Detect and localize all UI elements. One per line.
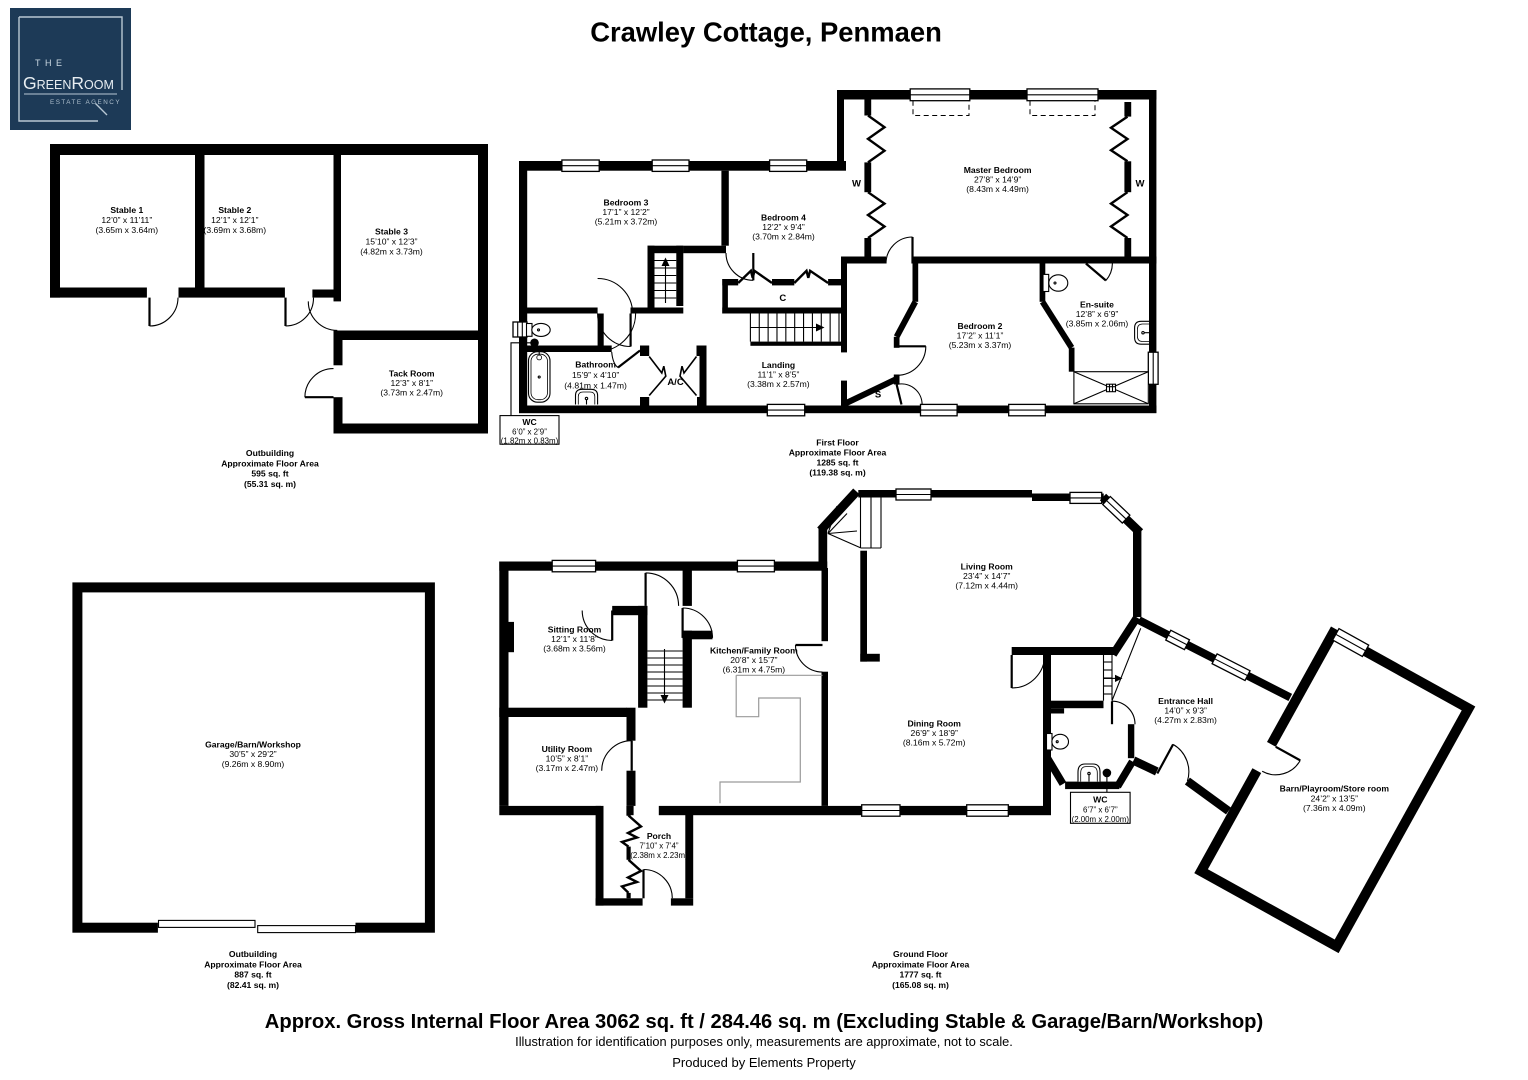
svg-text:(3.38m x 2.57m): (3.38m x 2.57m) bbox=[747, 379, 810, 389]
svg-text:WC: WC bbox=[522, 417, 536, 427]
svg-text:Living Room: Living Room bbox=[961, 562, 1013, 572]
svg-text:Bathroom: Bathroom bbox=[575, 360, 616, 370]
svg-text:(5.23m x 3.37m): (5.23m x 3.37m) bbox=[949, 340, 1012, 350]
svg-text:(82.41 sq. m): (82.41 sq. m) bbox=[227, 980, 279, 990]
svg-text:(3.70m x 2.84m): (3.70m x 2.84m) bbox=[752, 232, 815, 242]
svg-text:Approximate Floor Area: Approximate Floor Area bbox=[872, 959, 970, 969]
svg-text:Porch: Porch bbox=[647, 831, 671, 841]
svg-text:Approximate Floor Area: Approximate Floor Area bbox=[221, 458, 319, 468]
svg-text:(119.38 sq. m): (119.38 sq. m) bbox=[809, 468, 866, 478]
svg-text:12’1” x 11’8”: 12’1” x 11’8” bbox=[551, 634, 598, 644]
svg-text:12’0” x 11’11”: 12’0” x 11’11” bbox=[101, 215, 152, 225]
svg-text:26’9” x 18’9”: 26’9” x 18’9” bbox=[911, 728, 958, 738]
svg-text:17’1” x 12’2”: 17’1” x 12’2” bbox=[602, 207, 649, 217]
svg-text:Stable 3: Stable 3 bbox=[375, 227, 408, 237]
svg-text:Kitchen/Family Room: Kitchen/Family Room bbox=[710, 646, 798, 656]
svg-text:(4.82m x 3.73m): (4.82m x 3.73m) bbox=[360, 246, 423, 256]
svg-text:(3.65m x 3.64m): (3.65m x 3.64m) bbox=[96, 225, 159, 235]
svg-text:Approximate Floor Area: Approximate Floor Area bbox=[204, 959, 302, 969]
svg-text:Dining Room: Dining Room bbox=[907, 718, 961, 728]
svg-text:(8.43m x 4.49m): (8.43m x 4.49m) bbox=[966, 184, 1029, 194]
svg-text:Barn/Playroom/Store room: Barn/Playroom/Store room bbox=[1280, 784, 1390, 794]
svg-text:Outbuilding: Outbuilding bbox=[229, 949, 277, 959]
svg-text:THE: THE bbox=[35, 58, 67, 68]
svg-text:6’7” x 6’7”: 6’7” x 6’7” bbox=[1083, 805, 1118, 814]
svg-text:12’1” x 12’1”: 12’1” x 12’1” bbox=[211, 215, 258, 225]
svg-text:(9.26m x 8.90m): (9.26m x 8.90m) bbox=[222, 759, 285, 769]
svg-text:Entrance Hall: Entrance Hall bbox=[1158, 696, 1213, 706]
svg-text:14’0” x 9’3”: 14’0” x 9’3” bbox=[1164, 706, 1207, 716]
svg-text:A/C: A/C bbox=[667, 377, 684, 388]
svg-text:Approx. Gross Internal Floor A: Approx. Gross Internal Floor Area 3062 s… bbox=[265, 1011, 1263, 1033]
svg-text:595 sq. ft: 595 sq. ft bbox=[251, 469, 288, 479]
svg-text:6’0” x 2’9”: 6’0” x 2’9” bbox=[512, 427, 547, 436]
svg-text:W: W bbox=[852, 179, 861, 190]
svg-text:30’5” x 29’2”: 30’5” x 29’2” bbox=[229, 749, 276, 759]
svg-text:17’2” x 11’1”: 17’2” x 11’1” bbox=[957, 331, 1004, 341]
svg-text:Produced by Elements Property: Produced by Elements Property bbox=[672, 1055, 856, 1070]
svg-text:Stable 2: Stable 2 bbox=[218, 205, 251, 215]
svg-text:887 sq. ft: 887 sq. ft bbox=[234, 970, 271, 980]
svg-text:1777 sq. ft: 1777 sq. ft bbox=[899, 970, 941, 980]
svg-text:ESTATE AGENCY: ESTATE AGENCY bbox=[50, 99, 121, 106]
svg-text:First Floor: First Floor bbox=[816, 438, 859, 448]
svg-text:Bedroom 4: Bedroom 4 bbox=[761, 212, 806, 222]
svg-text:C: C bbox=[779, 293, 786, 304]
svg-text:(3.68m x 3.56m): (3.68m x 3.56m) bbox=[543, 644, 606, 654]
svg-text:(7.36m x 4.09m): (7.36m x 4.09m) bbox=[1303, 803, 1366, 813]
svg-text:En-suite: En-suite bbox=[1080, 299, 1114, 309]
svg-text:15’9” x 4’10”: 15’9” x 4’10” bbox=[572, 370, 619, 380]
svg-text:12’2” x 9’4”: 12’2” x 9’4” bbox=[762, 222, 805, 232]
svg-text:24’2” x 13’5”: 24’2” x 13’5” bbox=[1311, 793, 1358, 803]
svg-text:Approximate Floor Area: Approximate Floor Area bbox=[789, 448, 887, 458]
svg-text:Ground Floor: Ground Floor bbox=[893, 949, 949, 959]
svg-text:15’10” x 12’3”: 15’10” x 12’3” bbox=[365, 236, 417, 246]
svg-text:(3.17m x 2.47m): (3.17m x 2.47m) bbox=[536, 763, 599, 773]
svg-text:Bedroom 2: Bedroom 2 bbox=[958, 321, 1003, 331]
svg-text:S: S bbox=[875, 390, 881, 401]
svg-text:Landing: Landing bbox=[762, 360, 795, 370]
svg-text:(4.27m x 2.83m): (4.27m x 2.83m) bbox=[1154, 715, 1217, 725]
svg-text:(165.08 sq. m): (165.08 sq. m) bbox=[892, 980, 949, 990]
svg-text:12’8” x 6’9”: 12’8” x 6’9” bbox=[1076, 309, 1119, 319]
svg-text:7’10” x 7’4”: 7’10” x 7’4” bbox=[639, 841, 678, 850]
svg-text:23’4” x 14’7”: 23’4” x 14’7” bbox=[963, 571, 1010, 581]
svg-text:Sitting Room: Sitting Room bbox=[548, 625, 602, 635]
svg-text:WC: WC bbox=[1093, 794, 1107, 804]
svg-text:(2.00m x 2.00m): (2.00m x 2.00m) bbox=[1072, 815, 1130, 824]
svg-text:(6.31m x 4.75m): (6.31m x 4.75m) bbox=[723, 665, 786, 675]
svg-text:Garage/Barn/Workshop: Garage/Barn/Workshop bbox=[205, 740, 301, 750]
svg-text:(55.31 sq. m): (55.31 sq. m) bbox=[244, 479, 296, 489]
svg-text:20’8” x 15’7”: 20’8” x 15’7” bbox=[730, 655, 777, 665]
svg-text:(8.16m x 5.72m): (8.16m x 5.72m) bbox=[903, 738, 966, 748]
svg-text:Utility Room: Utility Room bbox=[542, 744, 593, 754]
svg-text:(2.38m x 2.23m): (2.38m x 2.23m) bbox=[630, 851, 688, 860]
svg-text:Crawley Cottage, Penmaen: Crawley Cottage, Penmaen bbox=[590, 17, 942, 48]
svg-text:Stable 1: Stable 1 bbox=[110, 205, 143, 215]
svg-text:Outbuilding: Outbuilding bbox=[246, 448, 294, 458]
svg-text:Illustration for identificatio: Illustration for identification purposes… bbox=[515, 1034, 1013, 1049]
svg-text:W: W bbox=[1136, 179, 1145, 190]
svg-text:10’5” x 8’1”: 10’5” x 8’1” bbox=[546, 754, 589, 764]
svg-text:(5.21m x 3.72m): (5.21m x 3.72m) bbox=[595, 217, 658, 227]
svg-text:(3.73m x 2.47m): (3.73m x 2.47m) bbox=[380, 387, 443, 397]
svg-text:(3.69m x 3.68m): (3.69m x 3.68m) bbox=[204, 225, 267, 235]
svg-text:(7.12m x 4.44m): (7.12m x 4.44m) bbox=[955, 581, 1018, 591]
svg-text:Master Bedroom: Master Bedroom bbox=[964, 165, 1032, 175]
svg-text:1285 sq. ft: 1285 sq. ft bbox=[816, 458, 858, 468]
svg-text:Bedroom 3: Bedroom 3 bbox=[604, 197, 649, 207]
svg-text:(3.85m x 2.06m): (3.85m x 2.06m) bbox=[1066, 319, 1129, 329]
svg-text:11’1” x 8’5”: 11’1” x 8’5” bbox=[757, 370, 799, 380]
svg-text:(4.81m x 1.47m): (4.81m x 1.47m) bbox=[564, 381, 627, 391]
svg-text:(1.82m x 0.83m): (1.82m x 0.83m) bbox=[501, 436, 559, 445]
svg-text:27’8” x 14’9”: 27’8” x 14’9” bbox=[974, 175, 1021, 185]
